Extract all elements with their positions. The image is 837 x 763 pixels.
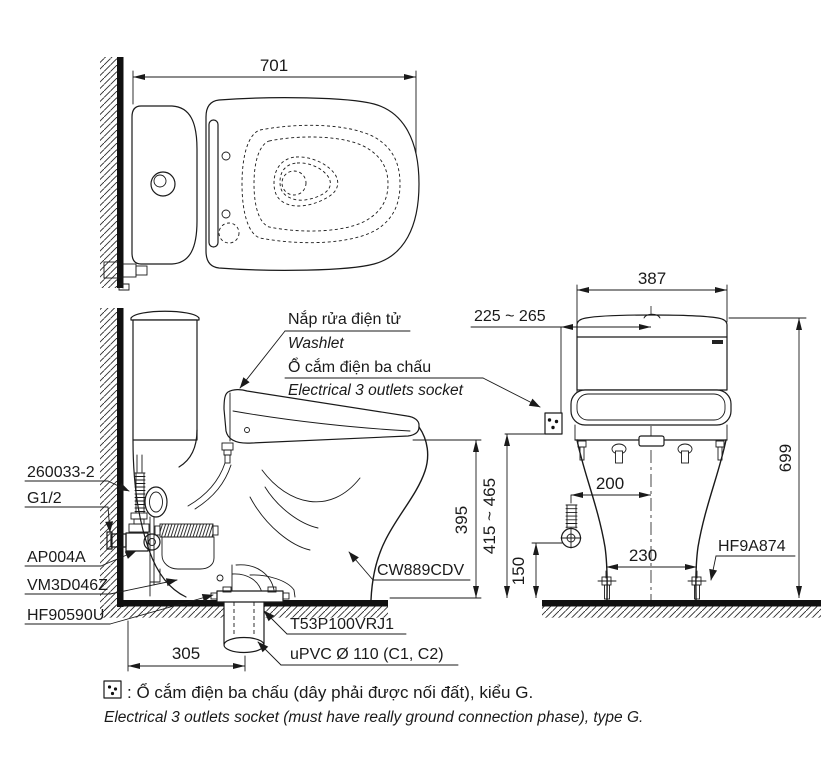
floor-line — [117, 600, 224, 607]
dim-top-width: 701 — [260, 56, 288, 75]
floor-hatch-rear — [542, 607, 821, 619]
dim-tank-width: 387 — [638, 269, 666, 288]
part-label-bolt: 260033-2 — [27, 464, 95, 481]
dim-bolt-pitch: 230 — [629, 546, 657, 565]
part-label-bowl: CW889CDV — [377, 562, 464, 579]
dim-supply-height: 150 — [509, 557, 528, 585]
part-label-stop-valve: AP004A — [27, 549, 86, 566]
dim-drain-offset: 305 — [172, 644, 200, 663]
dim-total-height: 699 — [776, 444, 795, 472]
floor-line-rear — [542, 600, 821, 607]
dim-bowl-height: 395 — [452, 506, 471, 534]
callout-socket-vi: Ổ cắm điện ba chấu — [288, 357, 431, 376]
callout-socket-en: Electrical 3 outlets socket — [288, 382, 464, 399]
tank-rear — [577, 315, 727, 390]
footnote: : Ổ cắm điện ba chấu (dây phải được nối … — [104, 681, 643, 726]
footnote-vi: : Ổ cắm điện ba chấu (dây phải được nối … — [127, 683, 533, 702]
socket-3dots-legend-icon — [104, 681, 121, 698]
floor-hatch — [100, 607, 224, 619]
floor-flange — [217, 591, 283, 602]
part-label-flange: HF90590U — [27, 607, 104, 624]
floor-bolts — [598, 577, 706, 599]
technical-drawing-page: 701 — [0, 0, 837, 763]
part-label-thread: G1/2 — [27, 490, 62, 507]
wall-line-side — [117, 308, 124, 607]
wall-hatch-side — [100, 308, 117, 618]
footnote-en: Electrical 3 outlets socket (must have r… — [104, 709, 643, 726]
socket-3dots-icon — [545, 413, 562, 434]
pedestal-left — [577, 440, 607, 600]
part-label-drain-pipe: uPVC Ø 110 (C1, C2) — [290, 646, 444, 663]
gasket — [160, 524, 213, 537]
dim-socket-height: 415 ~ 465 — [480, 478, 499, 554]
supply-valve-rear — [561, 495, 581, 548]
callout-washlet-en: Washlet — [288, 335, 344, 352]
callout-washlet-vi: Nắp rửa điện tử — [288, 309, 401, 328]
part-label-gasket: VM3D046Z — [27, 577, 108, 594]
part-label-drain-socket: T53P100VRJ1 — [290, 616, 394, 633]
wall-hatch — [100, 57, 117, 288]
rear-view: 387 225 ~ 265 — [471, 269, 821, 618]
wall-line — [117, 57, 124, 288]
dim-supply-side-offset: 200 — [596, 474, 624, 493]
tank-side — [133, 320, 197, 440]
part-label-bolt-cap: HF9A874 — [718, 538, 786, 555]
top-view: 701 — [100, 56, 419, 290]
pedestal-right — [696, 440, 726, 600]
brand-mark — [712, 340, 723, 344]
drawing-canvas: 701 — [0, 0, 837, 763]
washlet-connector — [188, 443, 233, 509]
tank-lid-side — [131, 311, 199, 320]
seat-lid-top-view — [206, 98, 419, 271]
dim-socket-side-offset: 225 ~ 265 — [474, 308, 546, 325]
